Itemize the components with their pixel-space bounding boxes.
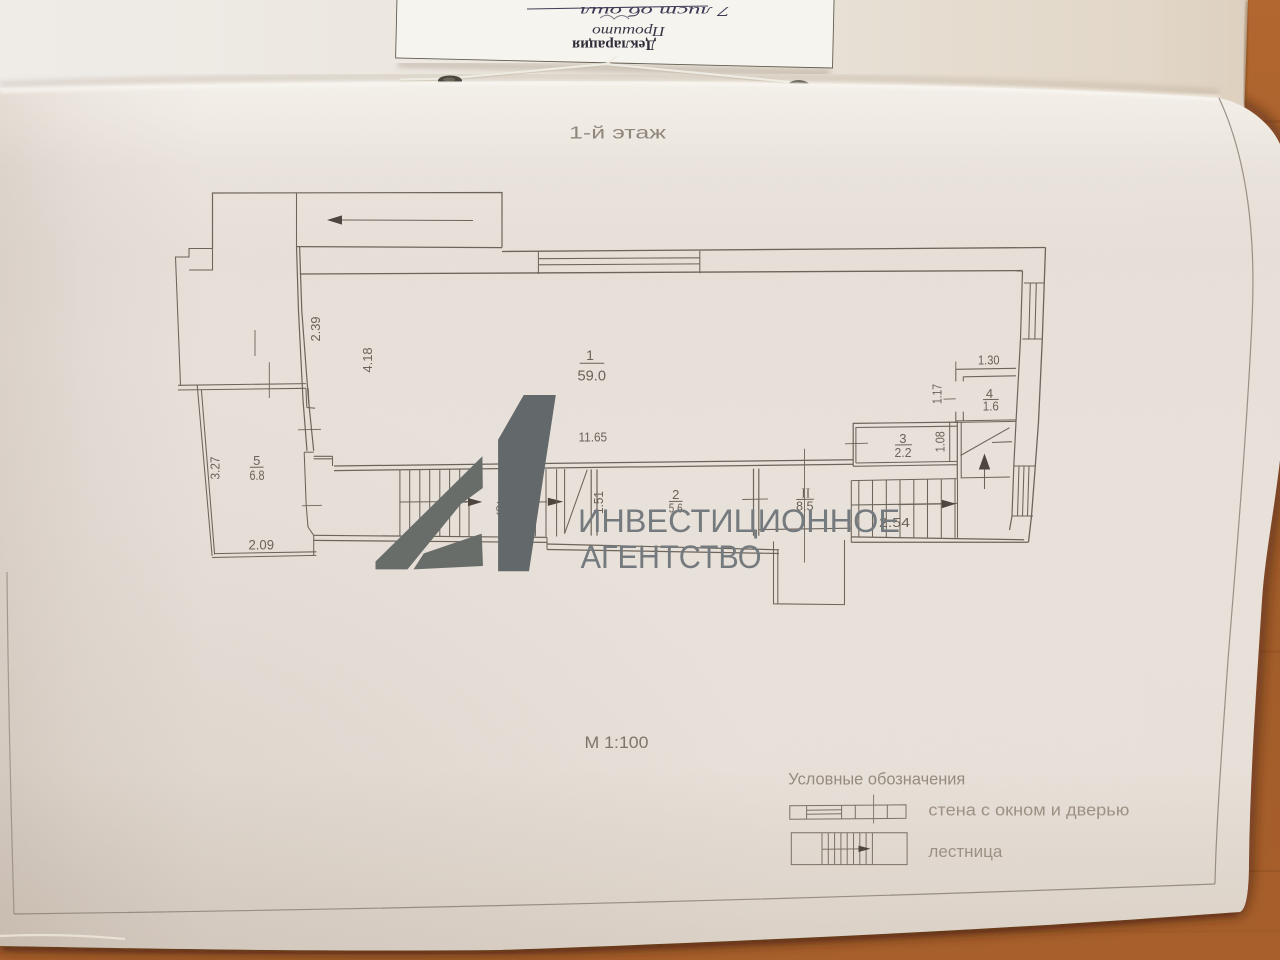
svg-text:59.0: 59.0 bbox=[578, 368, 607, 385]
svg-text:5: 5 bbox=[253, 453, 260, 468]
svg-text:1.6: 1.6 bbox=[983, 399, 999, 413]
svg-text:2.2: 2.2 bbox=[895, 446, 912, 460]
svg-text:3.27: 3.27 bbox=[208, 457, 223, 480]
svg-text:1.17: 1.17 bbox=[931, 384, 945, 404]
svg-text:1.08: 1.08 bbox=[934, 431, 948, 452]
svg-text:11.65: 11.65 bbox=[579, 430, 608, 445]
svg-text:1.30: 1.30 bbox=[978, 354, 1000, 368]
svg-text:1: 1 bbox=[586, 347, 594, 363]
svg-text:Прошито: Прошито bbox=[592, 23, 666, 38]
svg-text:Условные обозначения: Условные обозначения bbox=[788, 770, 965, 789]
svg-text:7 лист об ошл: 7 лист об ошл bbox=[580, 3, 730, 18]
svg-text:2.39: 2.39 bbox=[308, 317, 323, 342]
svg-text:стена с окном и дверью: стена с окном и дверью bbox=[928, 802, 1129, 820]
svg-text:3: 3 bbox=[899, 431, 906, 446]
svg-text:1-й этаж: 1-й этаж bbox=[569, 123, 666, 143]
svg-text:2: 2 bbox=[672, 487, 679, 502]
svg-text:АГЕНТСТВО: АГЕНТСТВО bbox=[581, 539, 762, 575]
svg-text:ИНВЕСТИЦИОННОЕ: ИНВЕСТИЦИОННОЕ bbox=[578, 503, 900, 539]
svg-text:2.09: 2.09 bbox=[249, 538, 275, 553]
svg-text:лестница: лестница bbox=[928, 843, 1003, 861]
svg-text:6.8: 6.8 bbox=[250, 468, 265, 483]
svg-text:4.18: 4.18 bbox=[360, 348, 375, 373]
svg-text:М 1:100: М 1:100 bbox=[585, 733, 649, 752]
